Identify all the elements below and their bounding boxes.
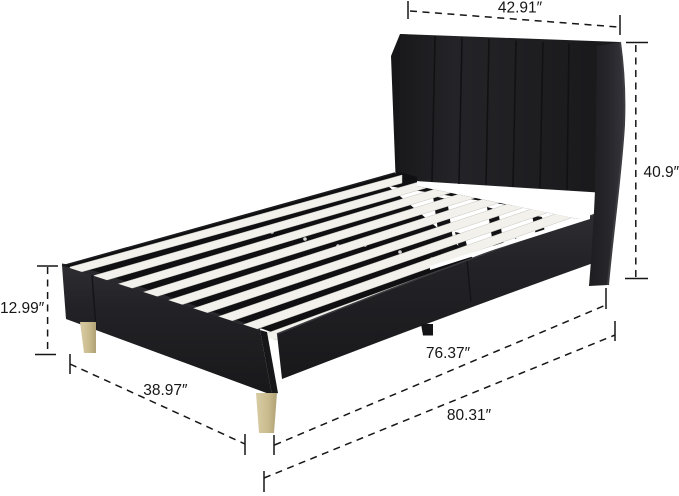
svg-text:12.99″: 12.99″ — [0, 300, 45, 317]
svg-text:38.97″: 38.97″ — [143, 382, 188, 399]
svg-text:76.37″: 76.37″ — [426, 345, 471, 362]
svg-text:42.91″: 42.91″ — [498, 0, 543, 17]
svg-text:80.31″: 80.31″ — [447, 407, 492, 424]
svg-text:40.9″: 40.9″ — [644, 164, 679, 181]
